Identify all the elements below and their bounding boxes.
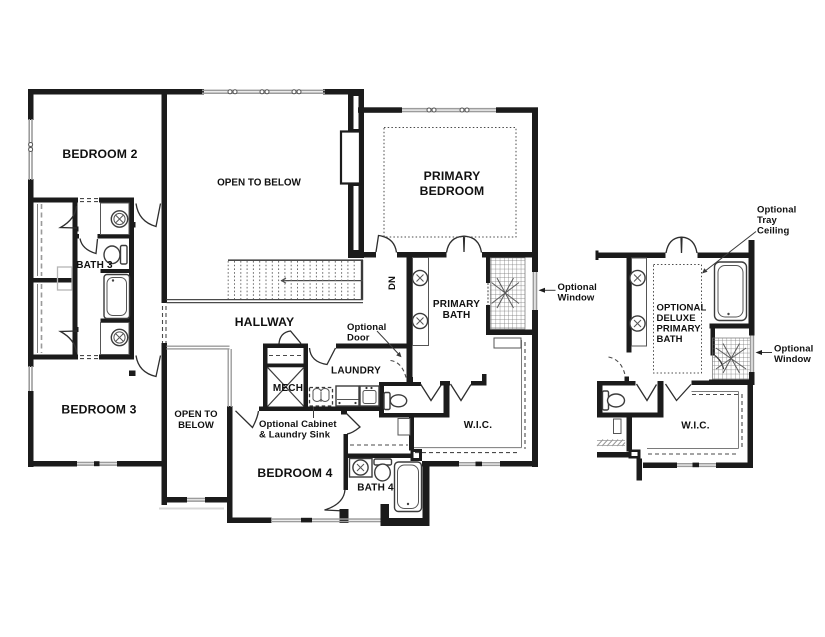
svg-text:OPTIONAL: OPTIONAL (657, 303, 707, 314)
svg-text:BELOW: BELOW (178, 420, 214, 431)
svg-text:PRIMARY: PRIMARY (433, 299, 480, 310)
svg-text:OPEN TO: OPEN TO (174, 409, 217, 420)
svg-text:Optional: Optional (774, 344, 813, 355)
svg-text:DELUXE: DELUXE (657, 313, 696, 324)
svg-text:Door: Door (347, 333, 370, 344)
svg-text:W.I.C.: W.I.C. (681, 421, 709, 432)
svg-text:& Laundry Sink: & Laundry Sink (259, 430, 331, 441)
svg-text:BEDROOM 2: BEDROOM 2 (62, 147, 137, 161)
svg-text:PRIMARY: PRIMARY (657, 324, 702, 335)
svg-text:Optional: Optional (347, 322, 386, 333)
svg-text:Tray: Tray (757, 215, 778, 226)
svg-text:BATH 3: BATH 3 (76, 260, 113, 271)
svg-text:OPEN TO BELOW: OPEN TO BELOW (217, 178, 301, 189)
svg-text:BEDROOM: BEDROOM (420, 184, 485, 198)
svg-text:BEDROOM 4: BEDROOM 4 (257, 466, 332, 480)
svg-text:Ceiling: Ceiling (757, 226, 789, 237)
svg-text:Window: Window (774, 354, 811, 365)
svg-text:BEDROOM 3: BEDROOM 3 (61, 403, 136, 417)
svg-text:Optional: Optional (558, 282, 597, 293)
svg-text:BATH: BATH (443, 310, 471, 321)
svg-text:PRIMARY: PRIMARY (424, 169, 481, 183)
svg-text:LAUNDRY: LAUNDRY (331, 366, 381, 377)
svg-text:W.I.C.: W.I.C. (464, 420, 492, 431)
svg-text:Optional Cabinet: Optional Cabinet (259, 419, 337, 430)
svg-text:BATH 4: BATH 4 (357, 483, 394, 494)
svg-text:HALLWAY: HALLWAY (235, 315, 295, 329)
svg-text:BATH: BATH (657, 334, 683, 345)
svg-text:Optional: Optional (757, 205, 796, 216)
svg-text:Window: Window (558, 293, 595, 304)
svg-text:MECH: MECH (273, 383, 303, 394)
svg-text:DN: DN (387, 276, 398, 290)
